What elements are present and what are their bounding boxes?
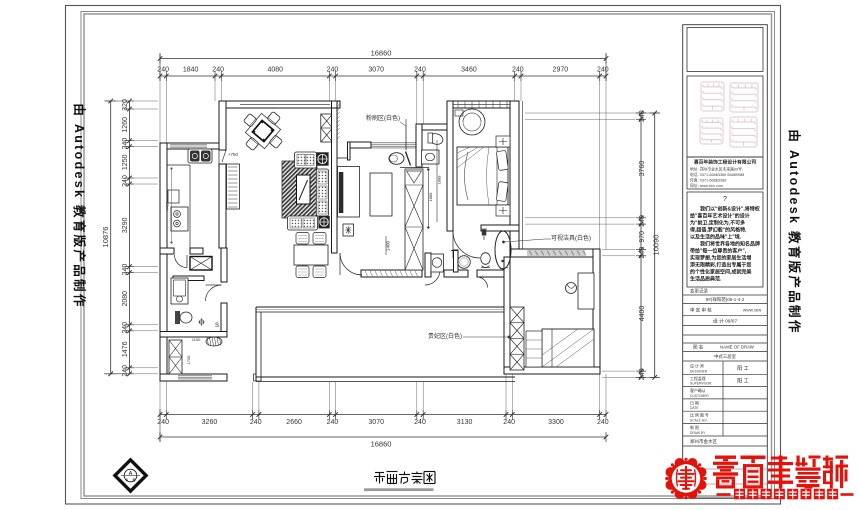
- svg-text:3070: 3070: [368, 419, 384, 426]
- svg-text:阳 工: 阳 工: [737, 365, 748, 372]
- svg-text:B: B: [132, 478, 135, 483]
- svg-text:16860: 16860: [371, 440, 392, 449]
- svg-text:DRAW BY: DRAW BY: [690, 431, 706, 435]
- svg-text:3300: 3300: [548, 419, 564, 426]
- svg-text:电话: 0371-66883366 66889988: 电话: 0371-66883366 66889988: [690, 172, 744, 177]
- svg-text:得,超值,梦幻般"的风格特,: 得,超值,梦幻般"的风格特,: [689, 227, 747, 234]
- svg-text:S: S: [215, 323, 219, 329]
- svg-text:9#(祥和苑)05-1-4-2: 9#(祥和苑)05-1-4-2: [706, 296, 745, 303]
- svg-text:240: 240: [503, 419, 515, 426]
- svg-text:A: A: [129, 471, 133, 477]
- svg-text:10090: 10090: [652, 235, 661, 256]
- svg-text:带给"每一位尊贵的客户",: 带给"每一位尊贵的客户",: [690, 248, 747, 255]
- svg-text:CUSTOMER: CUSTOMER: [690, 394, 709, 398]
- svg-text:NAME OF DRAW: NAME OF DRAW: [720, 345, 755, 350]
- svg-text:240: 240: [414, 67, 426, 74]
- svg-text:1758: 1758: [186, 355, 191, 365]
- svg-text:240: 240: [639, 110, 646, 122]
- svg-text:实现梦想,为您的家居生活增: 实现梦想,为您的家居生活增: [690, 255, 751, 262]
- svg-text:1476: 1476: [122, 341, 129, 357]
- svg-text:阳 工: 阳 工: [737, 377, 748, 384]
- svg-text:240: 240: [157, 419, 169, 426]
- svg-text:3760: 3760: [639, 161, 646, 177]
- svg-text:2660: 2660: [286, 419, 302, 426]
- svg-text:1888: 1888: [437, 175, 442, 185]
- svg-text:970: 970: [639, 231, 646, 243]
- svg-text:比 例 图 号: 比 例 图 号: [690, 413, 709, 418]
- svg-text:我们以"创新&设计",将特权: 我们以"创新&设计",将特权: [700, 206, 761, 213]
- svg-text:喜百年装饰工程设计有限公司: 喜百年装饰工程设计有限公司: [694, 159, 757, 166]
- svg-text:240: 240: [122, 264, 129, 276]
- svg-text:1888: 1888: [428, 192, 433, 202]
- svg-text:可视洁具(白色): 可视洁具(白色): [551, 234, 591, 242]
- svg-text:设 计 09/07: 设 计 09/07: [713, 318, 738, 325]
- svg-text:3460: 3460: [461, 67, 477, 74]
- svg-text:以及生活的品味"上"境.: 以及生活的品味"上"境.: [690, 234, 742, 241]
- svg-text:SUPERVISOR: SUPERVISOR: [690, 382, 712, 386]
- svg-text:图 名: 图 名: [693, 344, 703, 351]
- svg-text:网址: www.xbn.com: 网址: www.xbn.com: [690, 183, 723, 188]
- svg-text:1250: 1250: [122, 154, 129, 170]
- svg-text:240: 240: [639, 247, 646, 259]
- svg-text:中式三居室: 中式三居室: [714, 353, 737, 360]
- svg-text:生活品质典范.: 生活品质典范.: [690, 276, 722, 283]
- svg-text:4080: 4080: [268, 67, 284, 74]
- svg-text:?: ?: [723, 196, 727, 203]
- svg-text:240: 240: [212, 67, 224, 74]
- svg-text:审 定 审 核: 审 定 审 核: [690, 307, 712, 314]
- svg-text:由 Autodesk 教育版产品制作: 由 Autodesk 教育版产品制作: [72, 103, 87, 308]
- svg-text:1260: 1260: [122, 117, 129, 133]
- svg-text:3070: 3070: [368, 67, 384, 74]
- svg-text:3130: 3130: [457, 419, 473, 426]
- svg-text:为"前卫,定制化为,不可多: 为"前卫,定制化为,不可多: [690, 220, 745, 227]
- svg-text:240: 240: [250, 419, 262, 426]
- svg-text:1840: 1840: [183, 67, 199, 74]
- svg-text:240: 240: [639, 215, 646, 227]
- svg-text:1150: 1150: [192, 337, 201, 342]
- svg-text:2970: 2970: [553, 67, 569, 74]
- svg-text:240: 240: [414, 419, 426, 426]
- svg-text:4400: 4400: [639, 306, 646, 322]
- svg-text:给"喜百年艺术设计"的设计: 给"喜百年艺术设计"的设计: [690, 213, 750, 220]
- svg-text:粉刷区(白色): 粉刷区(白色): [366, 114, 400, 122]
- svg-text:地址: 郑州市金水区未来路69号: 地址: 郑州市金水区未来路69号: [690, 167, 742, 172]
- svg-text:WWW.XBN: WWW.XBN: [743, 309, 762, 313]
- svg-text:16860: 16860: [371, 49, 392, 58]
- svg-text:240: 240: [122, 138, 129, 150]
- svg-text:2080: 2080: [122, 291, 129, 307]
- svg-text:+750: +750: [228, 152, 239, 157]
- svg-text:DESIGNER: DESIGNER: [690, 369, 708, 373]
- svg-text:日 期: 日 期: [690, 400, 699, 405]
- svg-text:制 图: 制 图: [690, 425, 699, 430]
- svg-text:10876: 10876: [101, 227, 110, 248]
- svg-text:DATE: DATE: [690, 406, 699, 410]
- svg-text:4400: 4400: [165, 201, 170, 211]
- svg-text:240: 240: [122, 322, 129, 334]
- svg-text:240: 240: [597, 67, 609, 74]
- svg-text:工程监理: 工程监理: [690, 376, 706, 381]
- svg-text:的个性化家居空间,成就完美: 的个性化家居空间,成就完美: [690, 269, 752, 276]
- svg-text:变更记录: 变更记录: [690, 288, 708, 295]
- svg-text:客户确认: 客户确认: [690, 388, 706, 393]
- svg-text:3260: 3260: [202, 419, 218, 426]
- svg-text:3290: 3290: [122, 217, 129, 233]
- svg-text:设 计 师: 设 计 师: [690, 364, 704, 369]
- svg-text:添无限精彩,打造出专属于您: 添无限精彩,打造出专属于您: [690, 262, 751, 269]
- svg-text:传真: 0371-66883388: 传真: 0371-66883388: [690, 178, 726, 183]
- svg-text:由 Autodesk 教育版产品制作: 由 Autodesk 教育版产品制作: [787, 129, 802, 334]
- svg-text:贵妃区(白色): 贵妃区(白色): [428, 332, 462, 340]
- svg-text:240: 240: [157, 67, 169, 74]
- svg-text:我们将世界各地的知名品牌: 我们将世界各地的知名品牌: [700, 241, 760, 248]
- svg-text:240: 240: [597, 419, 609, 426]
- svg-text:240: 240: [512, 67, 524, 74]
- svg-text:240: 240: [122, 365, 129, 377]
- svg-text:240: 240: [122, 175, 129, 187]
- svg-text:郑州市金水区: 郑州市金水区: [690, 438, 717, 445]
- svg-text:SCALE NO.: SCALE NO.: [690, 419, 708, 423]
- svg-text:240: 240: [327, 67, 339, 74]
- svg-text:240: 240: [327, 419, 339, 426]
- svg-text:240: 240: [639, 368, 646, 380]
- svg-text:1400: 1400: [386, 240, 391, 251]
